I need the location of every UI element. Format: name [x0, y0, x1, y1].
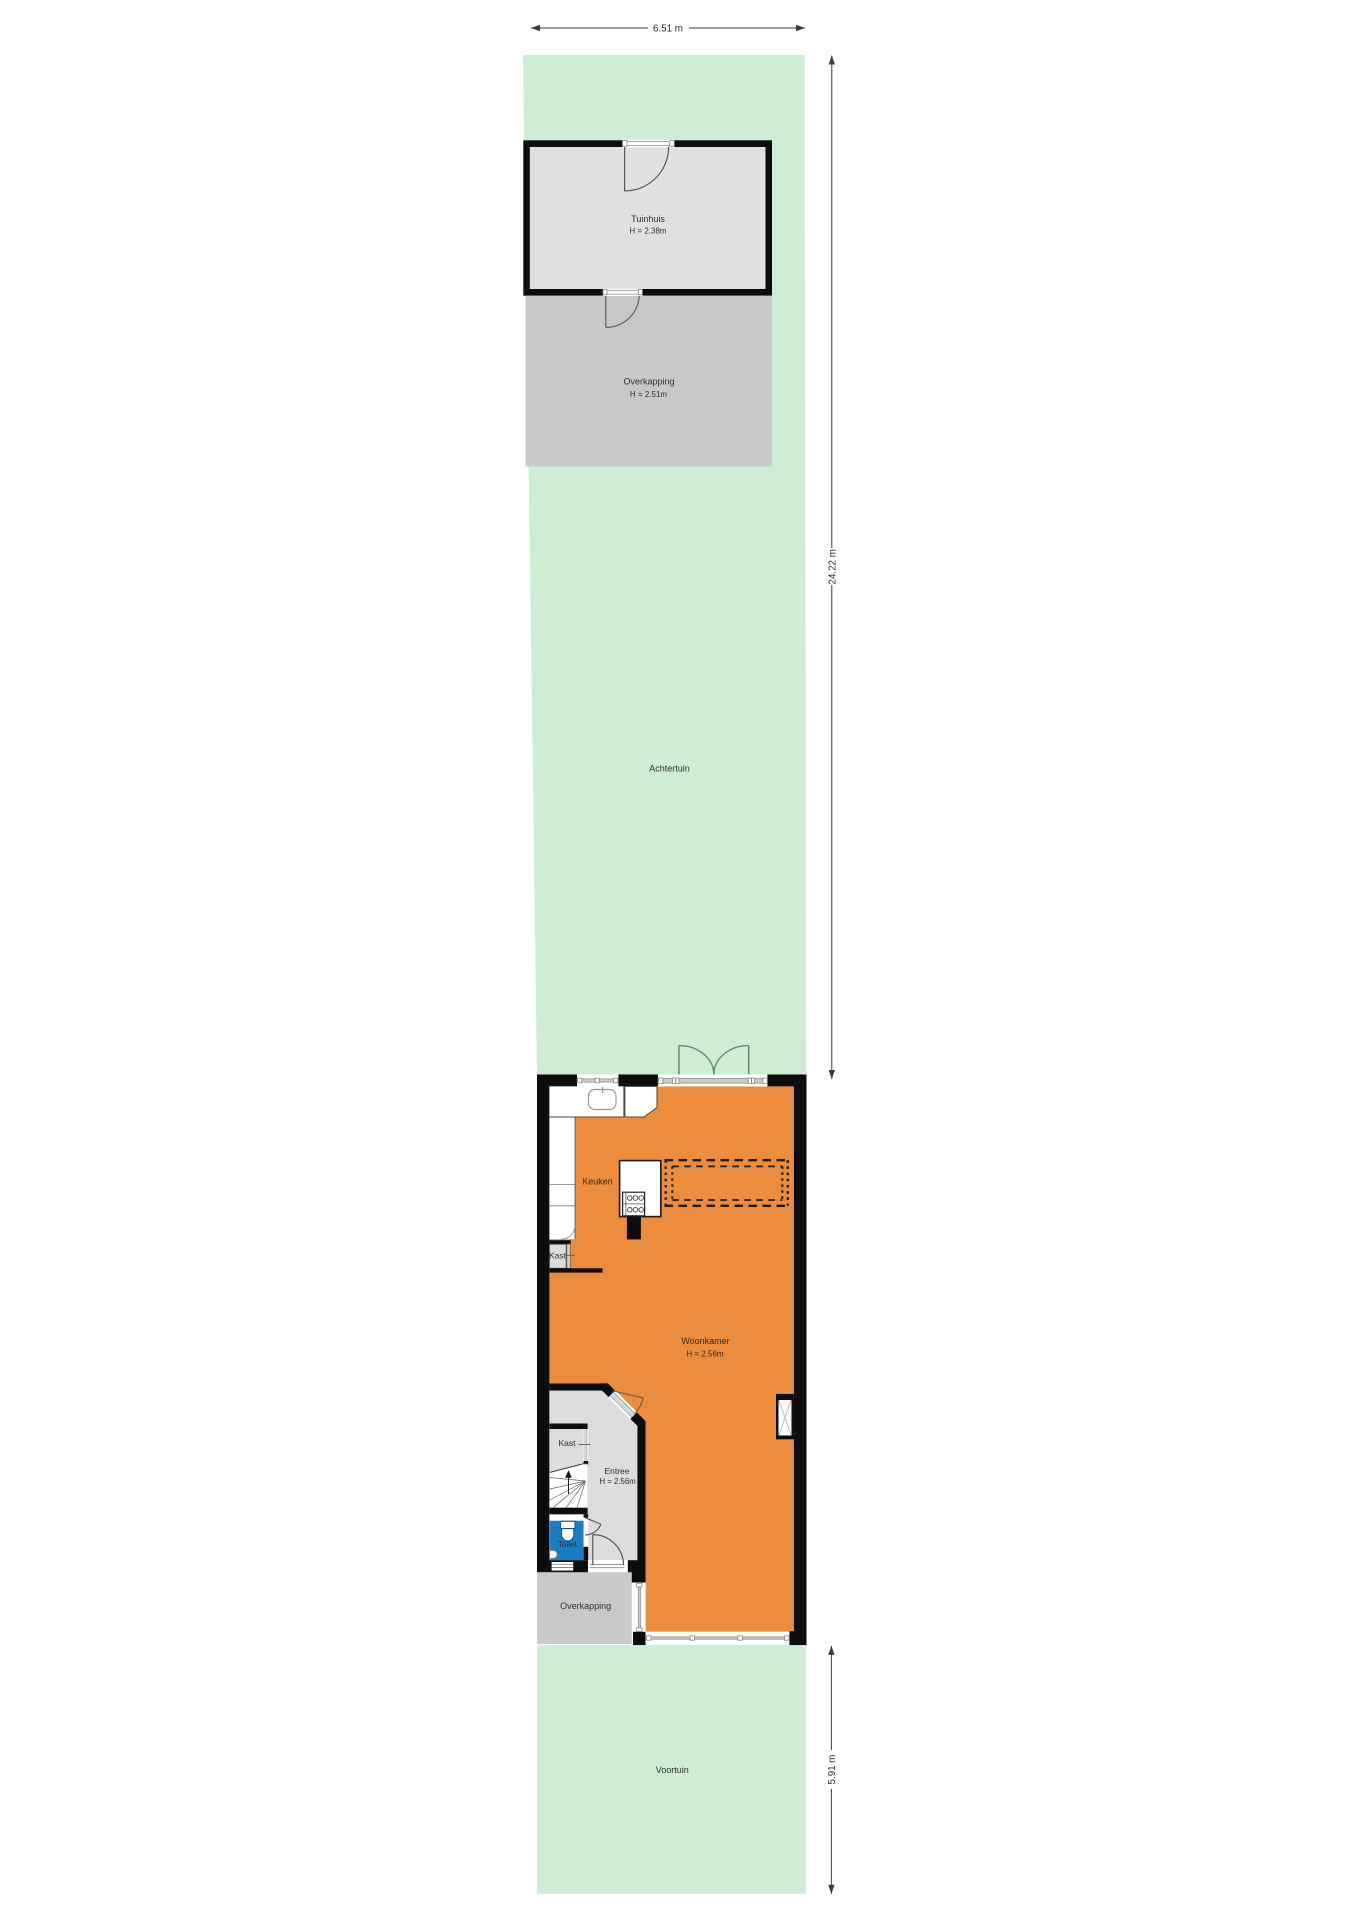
svg-text:H = 2.56m: H = 2.56m [686, 1350, 723, 1359]
svg-text:24.22 m: 24.22 m [827, 549, 838, 584]
svg-text:Woonkamer: Woonkamer [681, 1336, 729, 1346]
svg-text:Entree: Entree [604, 1466, 629, 1476]
svg-text:5.91 m: 5.91 m [827, 1755, 838, 1785]
svg-text:H = 2.56m: H = 2.56m [600, 1477, 636, 1486]
svg-text:Overkapping: Overkapping [560, 1601, 611, 1611]
svg-text:Kast: Kast [558, 1438, 576, 1448]
svg-text:H = 2.38m: H = 2.38m [629, 227, 666, 236]
svg-text:Kast: Kast [549, 1250, 567, 1260]
svg-text:Tuinhuis: Tuinhuis [631, 214, 665, 224]
svg-text:H = 2.51m: H = 2.51m [630, 390, 667, 399]
svg-text:Toilet: Toilet [558, 1540, 578, 1549]
svg-text:Achtertuin: Achtertuin [649, 764, 690, 774]
svg-text:Overkapping: Overkapping [623, 377, 674, 387]
svg-text:Voortuin: Voortuin [656, 1765, 689, 1775]
svg-text:6.51 m: 6.51 m [653, 23, 683, 34]
svg-text:Keuken: Keuken [582, 1176, 613, 1186]
